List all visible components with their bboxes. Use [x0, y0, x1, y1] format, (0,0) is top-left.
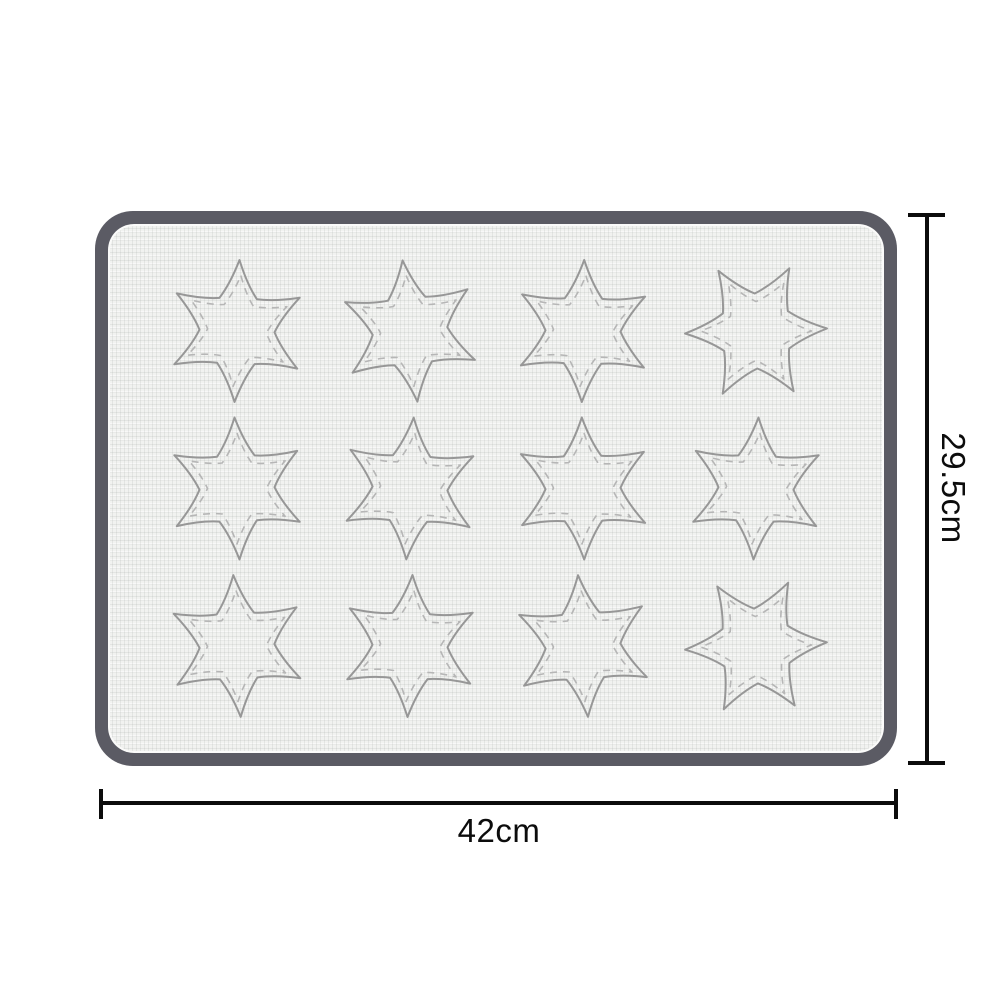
height-dimension-line — [925, 216, 929, 762]
height-dimension-top-tick — [908, 213, 945, 217]
width-dimension-label: 42cm — [101, 812, 897, 850]
height-dimension-bottom-tick — [908, 761, 945, 765]
baking-mat — [95, 211, 897, 766]
product-image: 42cm 29.5cm — [0, 0, 1000, 1000]
height-dimension-label: 29.5cm — [934, 432, 972, 543]
star-template-grid — [95, 211, 897, 766]
width-dimension-line — [101, 801, 897, 805]
